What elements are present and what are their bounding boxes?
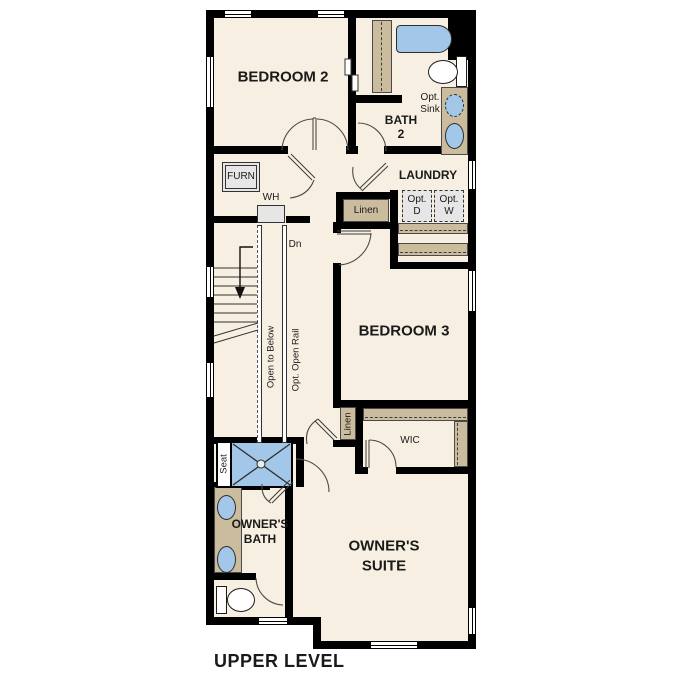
plan-title: UPPER LEVEL	[214, 651, 345, 672]
open-to-below-label: Open to Below	[266, 326, 276, 388]
wall	[336, 192, 394, 199]
window	[370, 641, 418, 649]
opt-sink-label: Opt.	[421, 93, 440, 103]
wall	[348, 95, 402, 103]
laundry-shelf	[398, 223, 468, 234]
wall	[448, 10, 476, 60]
room-label-bedroom3: BEDROOM 3	[359, 324, 450, 339]
stairs-down-label: Dn	[289, 240, 302, 250]
wall	[355, 402, 363, 474]
wall	[214, 216, 258, 223]
wall	[468, 10, 476, 649]
shower-icon	[230, 441, 293, 488]
wall	[333, 263, 341, 407]
opt-sink-label: Sink	[420, 105, 439, 115]
opt-washer-label: Opt.	[440, 195, 459, 205]
window	[206, 362, 214, 398]
wall	[356, 467, 368, 474]
room-label-bath2: BATH	[385, 114, 417, 126]
wall	[348, 18, 356, 154]
opt-open-rail-label: Opt. Open Rail	[291, 329, 301, 392]
window	[206, 266, 214, 298]
linen-label-hall: Linen	[354, 206, 378, 216]
window	[468, 270, 476, 312]
stair-rail	[257, 225, 262, 443]
toilet-icon	[428, 60, 458, 84]
wic-shelf-right	[454, 421, 468, 467]
room-label-owners-suite: OWNER'S	[348, 539, 419, 554]
room-label-laundry: LAUNDRY	[399, 169, 457, 181]
room-label-bedroom2: BEDROOM 2	[238, 70, 329, 85]
water-heater-label: WH	[263, 193, 280, 203]
sink-icon	[217, 546, 236, 573]
toilet-icon	[216, 586, 227, 614]
wall	[214, 573, 256, 580]
window	[317, 10, 345, 18]
toilet-icon	[227, 588, 255, 612]
floor-plan: BEDROOM 2 BATH 2 Opt. Sink LAUNDRY Opt. …	[0, 0, 687, 687]
wall	[390, 262, 468, 269]
room-label-owners-bath: OWNER'S	[232, 518, 289, 530]
water-heater-box	[257, 205, 285, 223]
room-label-bath2: 2	[398, 128, 405, 140]
opt-dryer-label: Opt.	[408, 195, 427, 205]
sink-icon	[445, 123, 464, 149]
opt-dryer-label: D	[413, 207, 420, 217]
bedroom2-closet-shelf	[372, 20, 392, 93]
wall	[285, 573, 293, 617]
wic-shelf-top	[363, 408, 468, 421]
room-label-owners-suite: SUITE	[362, 559, 406, 574]
furnace-label: FURN	[227, 172, 255, 182]
wall	[286, 216, 310, 223]
stair-rail	[282, 225, 287, 443]
shower-seat-label: Seat	[219, 454, 229, 474]
window	[258, 617, 288, 625]
linen-label-owners: Linen	[343, 412, 353, 435]
window	[206, 56, 214, 108]
wall	[396, 467, 468, 474]
wall	[296, 437, 304, 487]
wall	[333, 222, 341, 233]
wall	[214, 146, 288, 154]
wall	[390, 190, 398, 269]
laundry-shelf	[398, 243, 468, 256]
window	[468, 160, 476, 190]
opt-sink-icon	[445, 94, 464, 117]
opt-washer-label: W	[444, 207, 453, 217]
wall	[333, 222, 398, 229]
wall	[333, 440, 359, 447]
window	[224, 10, 252, 18]
room-label-wic: WIC	[400, 436, 419, 446]
window	[468, 607, 476, 635]
bathtub-icon	[396, 25, 452, 53]
room-label-owners-bath: BATH	[244, 533, 276, 545]
